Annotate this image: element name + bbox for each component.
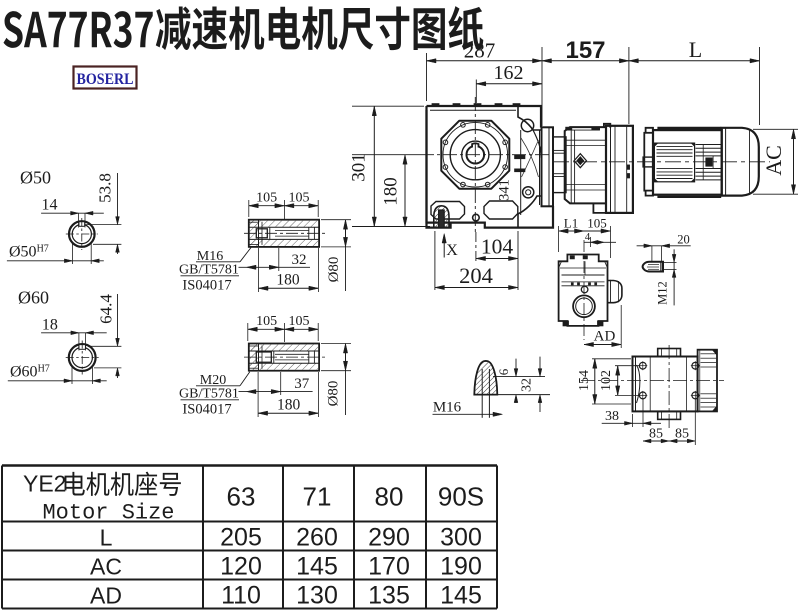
svg-text:Ø80: Ø80 <box>326 257 342 283</box>
svg-text:145: 145 <box>440 582 482 610</box>
svg-text:300: 300 <box>440 524 482 552</box>
svg-text:32: 32 <box>292 252 307 268</box>
svg-text:6: 6 <box>496 368 511 375</box>
svg-text:105: 105 <box>587 216 607 231</box>
svg-text:105: 105 <box>289 191 310 206</box>
svg-text:287: 287 <box>464 39 496 63</box>
svg-text:AC: AC <box>761 145 786 176</box>
svg-text:AD: AD <box>90 583 122 609</box>
svg-text:GB/T5781: GB/T5781 <box>179 387 239 402</box>
svg-text:180: 180 <box>277 397 301 414</box>
svg-text:IS04017: IS04017 <box>182 402 231 418</box>
svg-text:AC: AC <box>90 554 122 580</box>
svg-text:Motor Size: Motor Size <box>42 501 174 526</box>
svg-text:180: 180 <box>276 272 300 289</box>
svg-text:20: 20 <box>677 233 690 247</box>
svg-text:105: 105 <box>256 314 277 329</box>
svg-text:BOSERL: BOSERL <box>77 71 134 88</box>
svg-text:204: 204 <box>459 263 493 288</box>
svg-text:AD: AD <box>594 329 616 345</box>
svg-text:341: 341 <box>496 179 512 201</box>
svg-text:120: 120 <box>220 553 262 581</box>
svg-text:105: 105 <box>289 314 310 329</box>
svg-text:130: 130 <box>296 582 338 610</box>
svg-text:135: 135 <box>368 582 410 610</box>
svg-text:Ø80: Ø80 <box>326 381 342 407</box>
svg-text:L: L <box>689 37 702 62</box>
svg-text:290: 290 <box>368 524 410 552</box>
svg-text:105: 105 <box>256 191 277 206</box>
svg-text:14: 14 <box>42 197 58 214</box>
svg-text:4: 4 <box>585 231 591 243</box>
svg-text:180: 180 <box>381 177 402 206</box>
svg-text:102: 102 <box>599 370 614 391</box>
svg-text:205: 205 <box>220 524 262 552</box>
svg-text:YE2: YE2 <box>23 471 66 497</box>
svg-text:63: 63 <box>227 482 256 512</box>
svg-text:157: 157 <box>565 37 605 64</box>
svg-text:170: 170 <box>368 553 410 581</box>
svg-text:260: 260 <box>296 524 338 552</box>
svg-text:M16: M16 <box>433 400 462 416</box>
svg-text:71: 71 <box>303 482 332 512</box>
svg-text:301: 301 <box>349 153 370 182</box>
svg-text:M12: M12 <box>656 281 670 305</box>
svg-text:38: 38 <box>605 409 619 424</box>
svg-text:L1: L1 <box>564 216 578 231</box>
svg-text:154: 154 <box>577 370 592 391</box>
svg-text:32: 32 <box>520 378 535 392</box>
svg-text:110: 110 <box>221 582 261 610</box>
svg-text:80: 80 <box>375 482 404 512</box>
svg-text:GB/T5781: GB/T5781 <box>179 263 239 278</box>
svg-text:Ø60: Ø60 <box>18 288 49 308</box>
svg-text:190: 190 <box>440 553 482 581</box>
svg-text:X: X <box>446 242 458 259</box>
svg-text:90S: 90S <box>438 482 484 512</box>
svg-text:37: 37 <box>294 376 310 392</box>
svg-text:64.4: 64.4 <box>97 294 116 324</box>
svg-text:53.8: 53.8 <box>95 173 114 203</box>
svg-text:162: 162 <box>494 62 524 84</box>
svg-text:18: 18 <box>42 317 58 334</box>
svg-text:104: 104 <box>481 235 514 259</box>
svg-text:145: 145 <box>296 553 338 581</box>
svg-text:L: L <box>100 525 113 551</box>
svg-text:Ø50: Ø50 <box>20 168 51 188</box>
svg-text:IS04017: IS04017 <box>182 278 231 294</box>
